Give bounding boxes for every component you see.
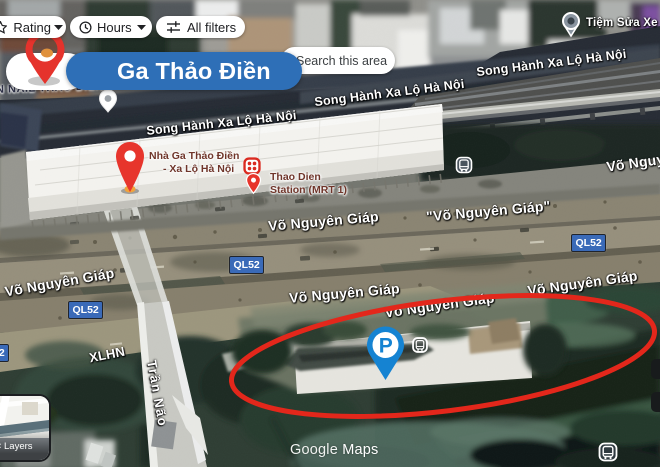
svg-text:P: P [379,335,393,358]
